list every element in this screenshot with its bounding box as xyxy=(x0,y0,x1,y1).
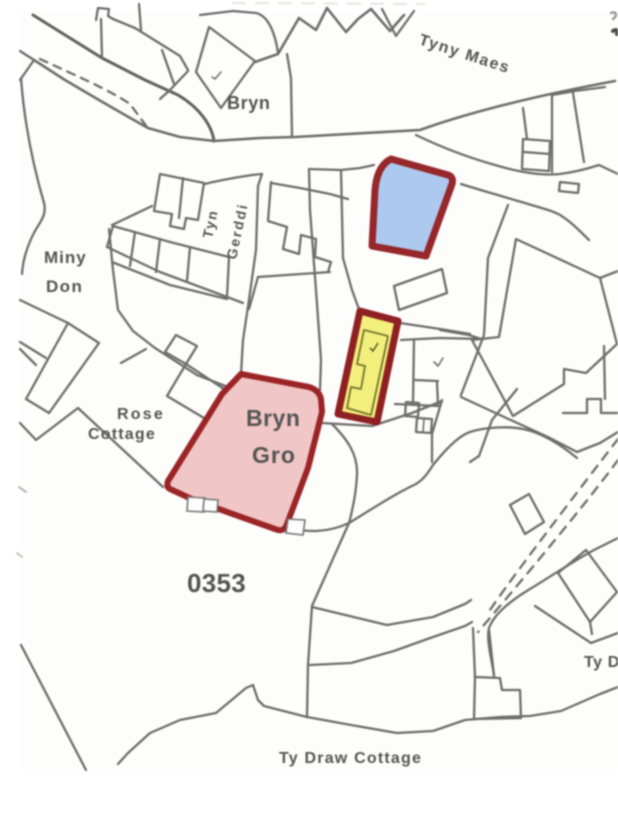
svg-text:Don: Don xyxy=(46,277,83,296)
svg-text:Ty Dr: Ty Dr xyxy=(584,654,618,671)
svg-text:Rose: Rose xyxy=(117,406,165,423)
svg-text:Gro: Gro xyxy=(252,442,296,468)
svg-text:Ty Draw Cottage: Ty Draw Cottage xyxy=(279,750,422,767)
svg-text:Miny: Miny xyxy=(44,248,87,267)
svg-text:Bryn: Bryn xyxy=(227,93,270,113)
svg-text:Bryn: Bryn xyxy=(246,405,300,431)
svg-text:0353: 0353 xyxy=(187,568,246,598)
svg-text:Cottage: Cottage xyxy=(88,426,156,443)
